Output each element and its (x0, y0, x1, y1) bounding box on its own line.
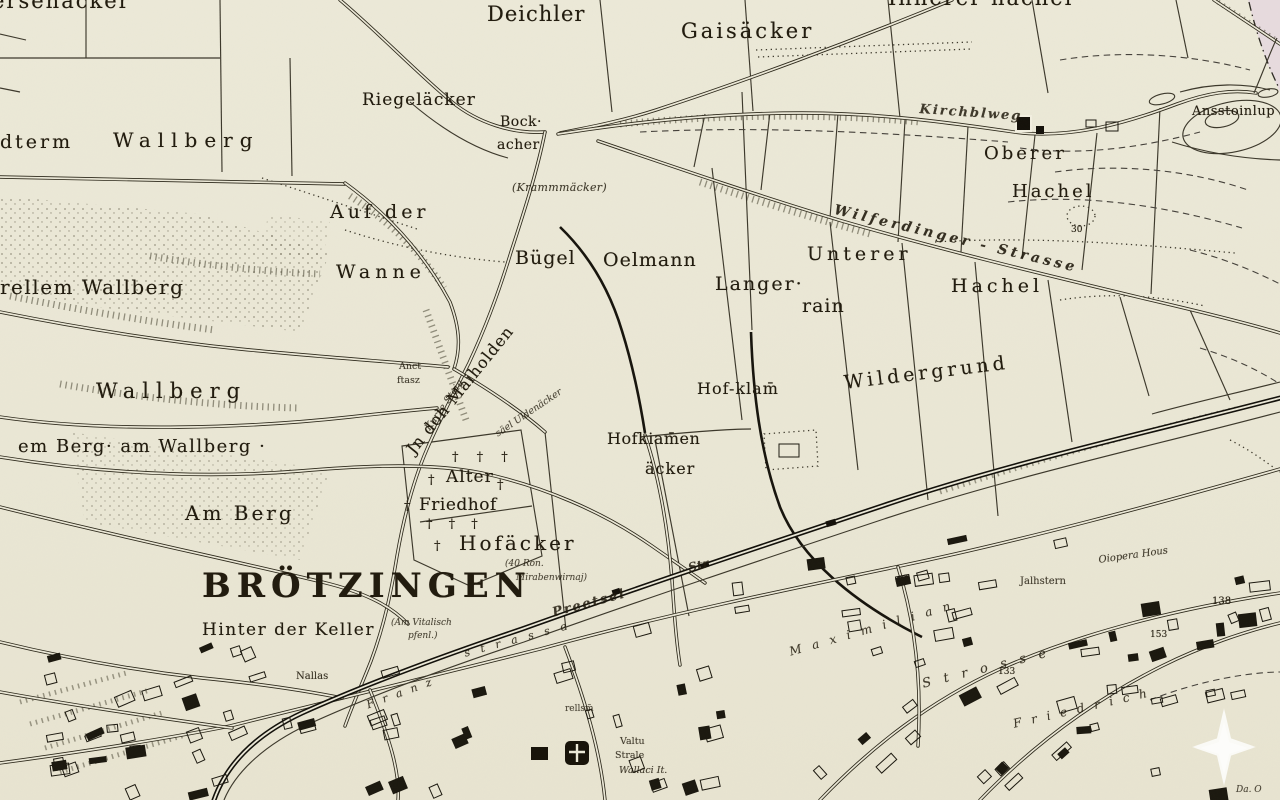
map-canvas[interactable]: .rd-out{fill:none;stroke:#2b2719;stroke-… (0, 0, 1280, 800)
map-linework: .rd-out{fill:none;stroke:#2b2719;stroke-… (0, 0, 1280, 800)
